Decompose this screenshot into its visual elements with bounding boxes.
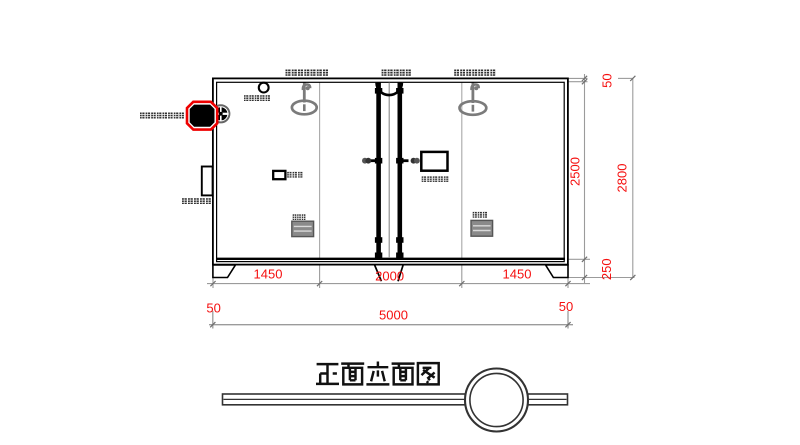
- svg-text:2800: 2800: [615, 164, 630, 193]
- svg-text:1450: 1450: [503, 267, 532, 282]
- svg-text:50: 50: [559, 299, 573, 314]
- svg-text:50: 50: [600, 73, 615, 87]
- svg-text:2000: 2000: [375, 269, 404, 284]
- svg-text:250: 250: [599, 258, 614, 280]
- svg-text:1450: 1450: [254, 267, 283, 282]
- svg-text:50: 50: [206, 301, 220, 316]
- svg-text:2500: 2500: [567, 157, 582, 186]
- svg-text:5000: 5000: [379, 307, 408, 322]
